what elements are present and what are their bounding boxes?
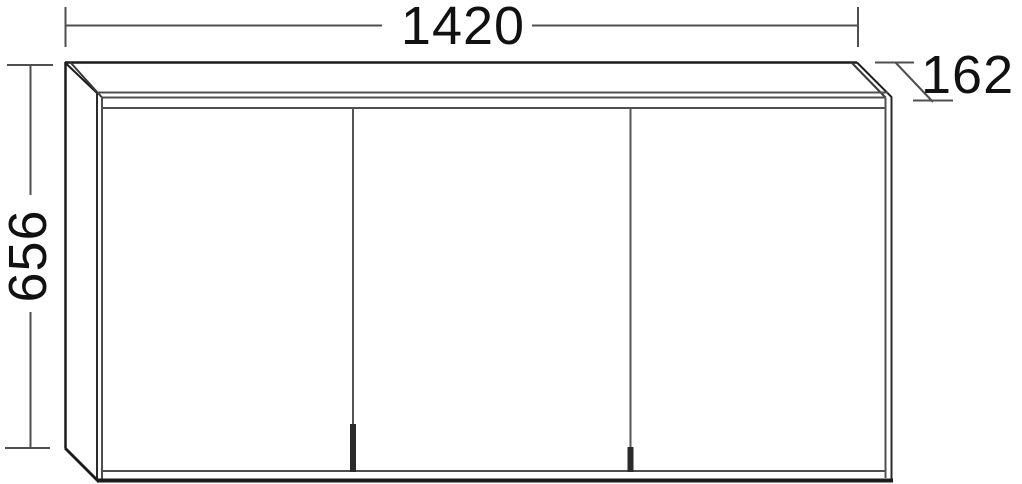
cabinet-drawing	[0, 0, 1022, 484]
cabinet-top-left-outer-diagonal	[65, 63, 97, 94]
width-dimension-label: 1420	[393, 0, 533, 53]
cabinet-outline	[65, 62, 893, 482]
cabinet-bottom-left-diagonal	[65, 448, 99, 482]
cabinet-doors	[102, 108, 886, 472]
height-dimension-label: 656	[1, 209, 55, 302]
depth-dimension-label: 162	[921, 48, 1014, 102]
technical-drawing-canvas: 1420 656 162	[0, 0, 1022, 484]
